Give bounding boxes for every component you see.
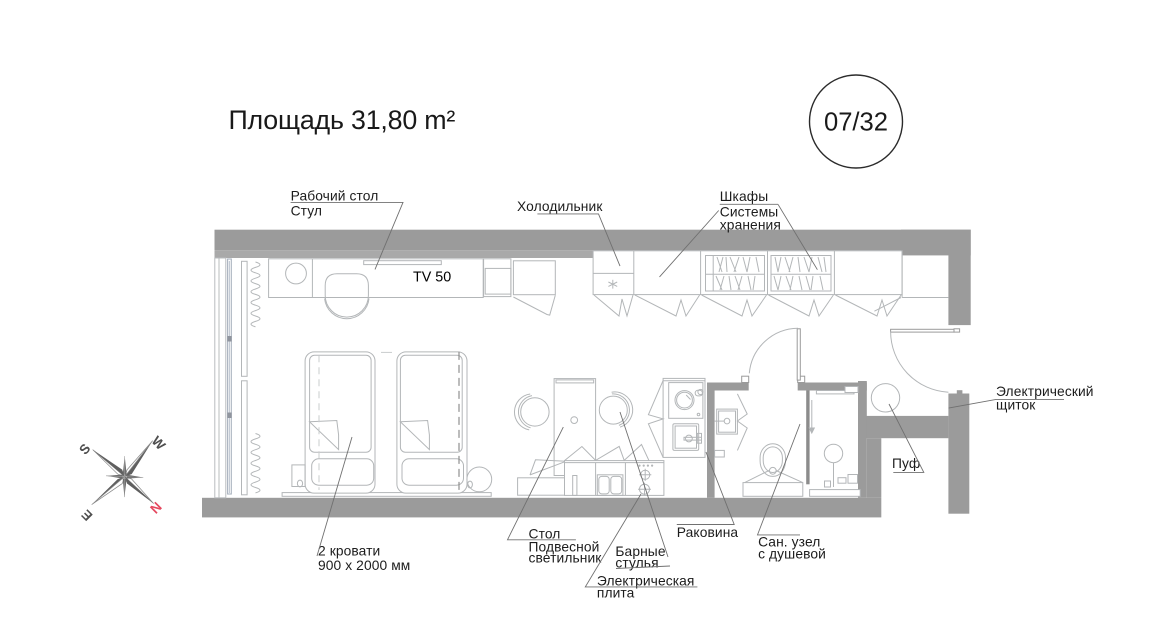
svg-text:TV 50: TV 50 bbox=[413, 270, 451, 286]
svg-text:хранения: хранения bbox=[720, 218, 781, 233]
svg-text:плита: плита bbox=[597, 586, 635, 601]
svg-text:Площадь 31,80 m²: Площадь 31,80 m² bbox=[229, 105, 456, 135]
svg-text:Раковина: Раковина bbox=[677, 525, 739, 540]
svg-text:Стул: Стул bbox=[291, 204, 322, 219]
svg-text:светильник: светильник bbox=[529, 551, 603, 566]
svg-text:Пуф: Пуф bbox=[892, 456, 920, 471]
svg-text:Шкафы: Шкафы bbox=[720, 189, 768, 204]
svg-text:900 x 2000 мм: 900 x 2000 мм bbox=[318, 558, 410, 573]
svg-text:с душевой: с душевой bbox=[758, 547, 826, 562]
svg-text:2 кровати: 2 кровати bbox=[318, 544, 380, 559]
svg-text:Рабочий стол: Рабочий стол bbox=[291, 188, 379, 203]
svg-text:Холодильник: Холодильник bbox=[517, 199, 603, 214]
svg-text:07/32: 07/32 bbox=[824, 108, 888, 136]
